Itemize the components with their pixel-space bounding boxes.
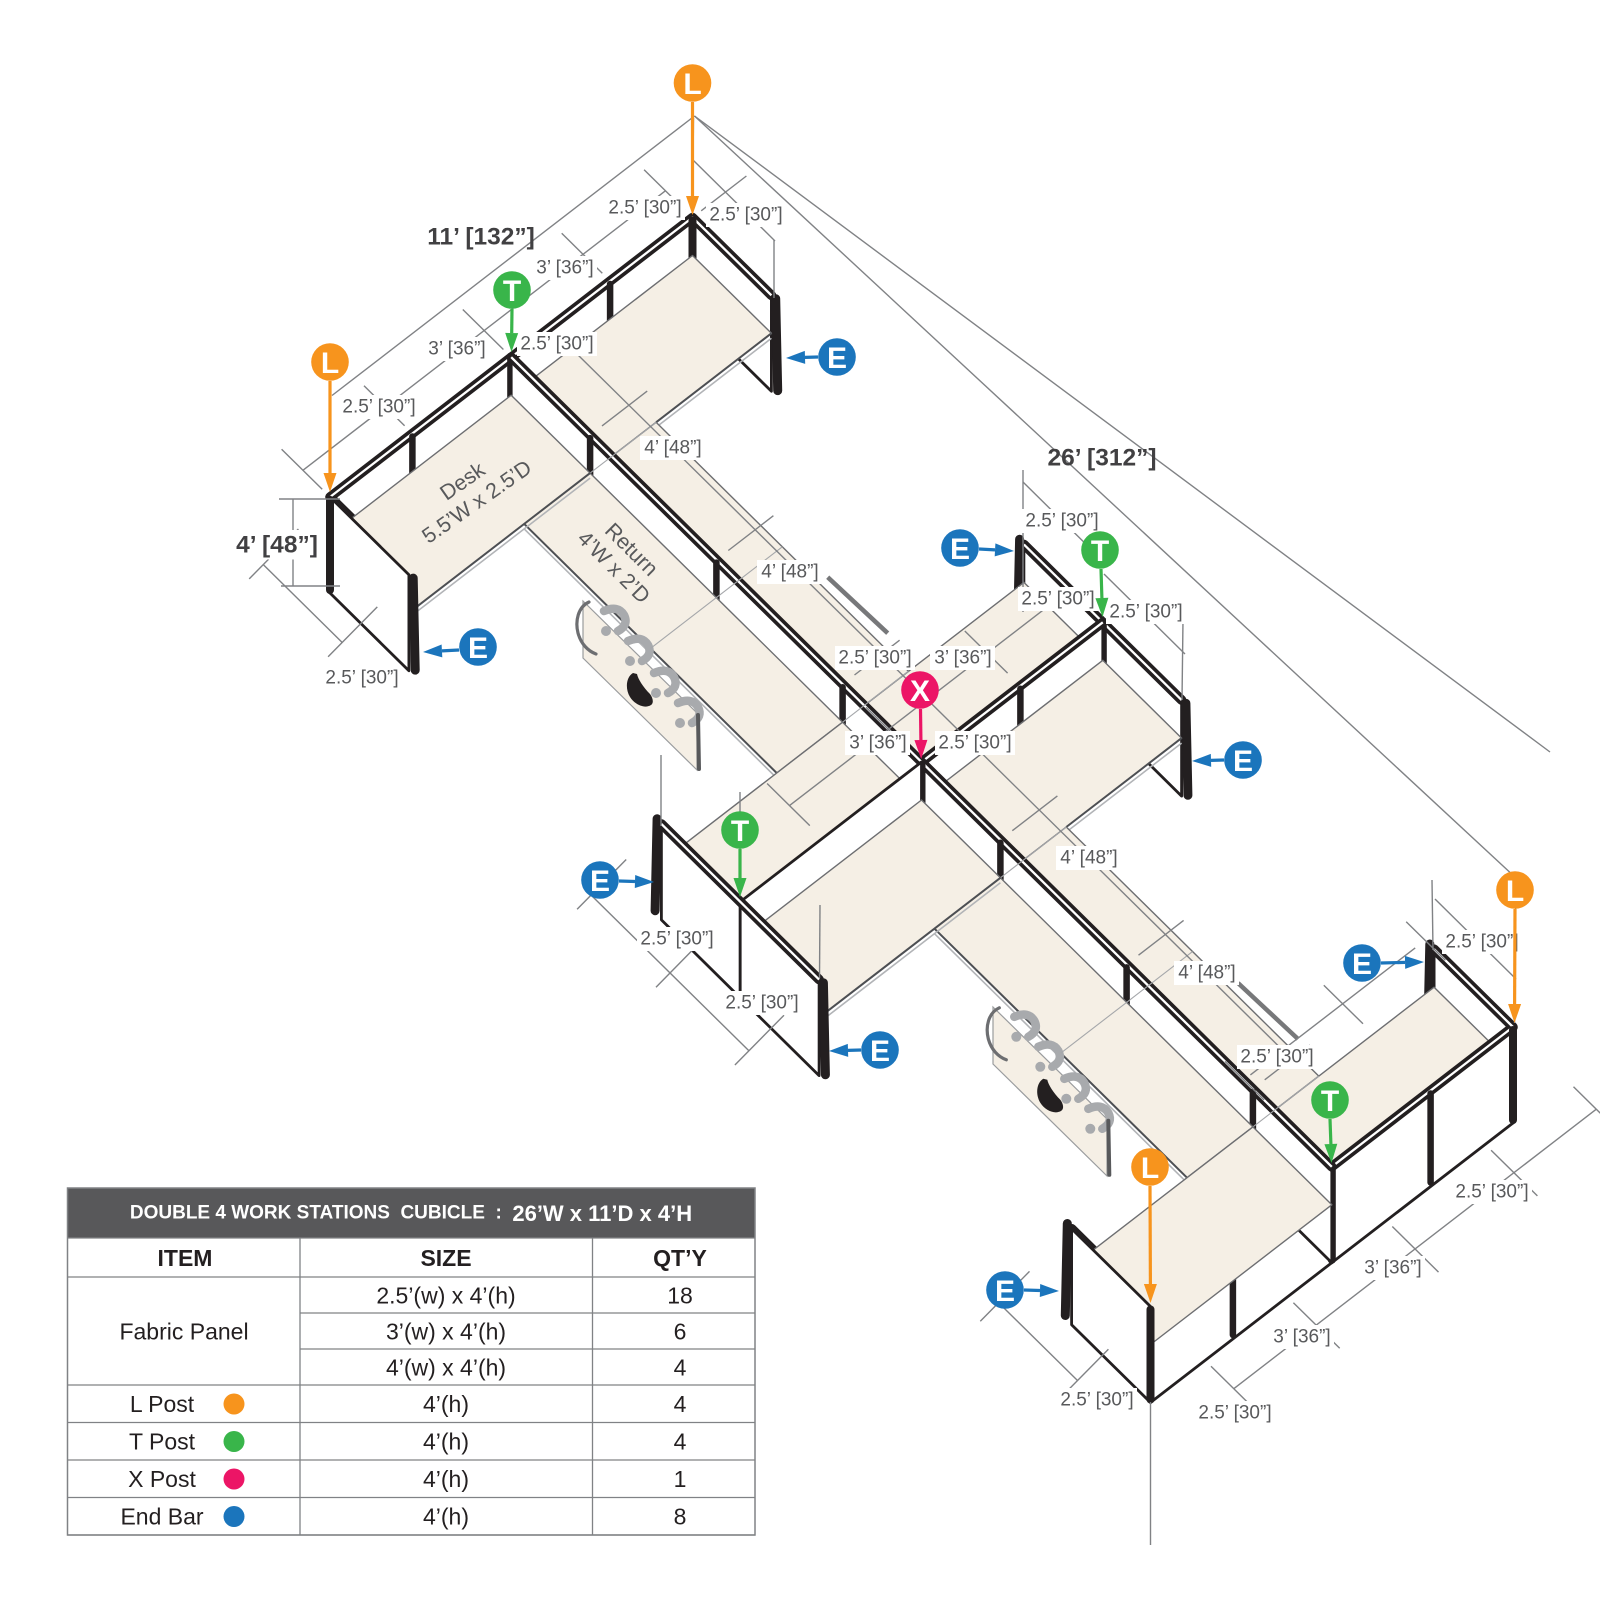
svg-text:4’ [48”]: 4’ [48”] bbox=[761, 562, 818, 583]
svg-text:X Post: X Post bbox=[128, 1466, 196, 1492]
svg-text:11’ [132”]: 11’ [132”] bbox=[427, 224, 535, 251]
svg-text:3’ [36”]: 3’ [36”] bbox=[428, 339, 485, 360]
svg-text:4’ [48”]: 4’ [48”] bbox=[644, 438, 701, 459]
svg-text:4’(h): 4’(h) bbox=[423, 1391, 469, 1417]
svg-text:L: L bbox=[321, 347, 339, 380]
svg-text:3’(w) x 4’(h): 3’(w) x 4’(h) bbox=[386, 1319, 506, 1345]
svg-text:E: E bbox=[468, 632, 488, 665]
svg-text:2.5’ [30”]: 2.5’ [30”] bbox=[1109, 602, 1182, 623]
svg-text:End Bar: End Bar bbox=[120, 1504, 203, 1530]
svg-text:2.5’ [30”]: 2.5’ [30”] bbox=[1455, 1182, 1528, 1203]
svg-text:T: T bbox=[731, 815, 749, 848]
svg-text:2.5’(w) x 4’(h): 2.5’(w) x 4’(h) bbox=[376, 1283, 515, 1309]
svg-text:T: T bbox=[503, 275, 521, 308]
svg-text:2.5’ [30”]: 2.5’ [30”] bbox=[1025, 511, 1098, 532]
svg-text:T: T bbox=[1091, 535, 1109, 568]
svg-text:4’(w) x 4’(h): 4’(w) x 4’(h) bbox=[386, 1355, 506, 1381]
svg-text:2.5’ [30”]: 2.5’ [30”] bbox=[838, 648, 911, 669]
svg-text:4’(h): 4’(h) bbox=[423, 1429, 469, 1455]
svg-text:3’ [36”]: 3’ [36”] bbox=[1273, 1327, 1330, 1348]
svg-text:L: L bbox=[1141, 1152, 1159, 1185]
svg-text:L: L bbox=[683, 68, 701, 101]
svg-text:2.5’ [30”]: 2.5’ [30”] bbox=[709, 205, 782, 226]
svg-text:18: 18 bbox=[667, 1283, 693, 1309]
svg-text:4: 4 bbox=[674, 1429, 687, 1455]
svg-text:2.5’ [30”]: 2.5’ [30”] bbox=[1240, 1047, 1313, 1068]
svg-text:E: E bbox=[870, 1035, 890, 1068]
svg-text:2.5’ [30”]: 2.5’ [30”] bbox=[608, 198, 681, 219]
svg-text:2.5’ [30”]: 2.5’ [30”] bbox=[1021, 589, 1094, 610]
svg-text:QT’Y: QT’Y bbox=[653, 1245, 707, 1271]
svg-text:1: 1 bbox=[674, 1466, 687, 1492]
svg-text:ITEM: ITEM bbox=[158, 1245, 213, 1271]
svg-text:2.5’ [30”]: 2.5’ [30”] bbox=[1445, 932, 1518, 953]
svg-text:2.5’ [30”]: 2.5’ [30”] bbox=[640, 929, 713, 950]
svg-text:Fabric Panel: Fabric Panel bbox=[119, 1319, 248, 1345]
svg-text:DOUBLE 4 WORK STATIONS CUBICL: DOUBLE 4 WORK STATIONS CUBICLE : 26’W x … bbox=[130, 1201, 692, 1226]
svg-text:E: E bbox=[590, 865, 610, 898]
svg-text:2.5’ [30”]: 2.5’ [30”] bbox=[938, 733, 1011, 754]
svg-text:6: 6 bbox=[674, 1319, 687, 1345]
svg-text:4’ [48”]: 4’ [48”] bbox=[1060, 848, 1117, 869]
svg-text:T: T bbox=[1321, 1085, 1339, 1118]
svg-text:3’ [36”]: 3’ [36”] bbox=[1364, 1258, 1421, 1279]
svg-text:8: 8 bbox=[674, 1504, 687, 1530]
svg-text:E: E bbox=[827, 342, 847, 375]
svg-text:3’ [36”]: 3’ [36”] bbox=[849, 733, 906, 754]
svg-text:3’ [36”]: 3’ [36”] bbox=[536, 258, 593, 279]
svg-text:4: 4 bbox=[674, 1391, 687, 1417]
svg-text:2.5’ [30”]: 2.5’ [30”] bbox=[342, 397, 415, 418]
svg-text:3’ [36”]: 3’ [36”] bbox=[934, 648, 991, 669]
svg-text:2.5’ [30”]: 2.5’ [30”] bbox=[325, 668, 398, 689]
svg-text:4’ [48”]: 4’ [48”] bbox=[236, 532, 318, 559]
svg-text:E: E bbox=[950, 533, 970, 566]
svg-text:E: E bbox=[995, 1275, 1015, 1308]
svg-text:X: X bbox=[910, 675, 930, 708]
svg-text:SIZE: SIZE bbox=[420, 1245, 471, 1271]
svg-text:4’ [48”]: 4’ [48”] bbox=[1178, 963, 1235, 984]
svg-text:L: L bbox=[1506, 875, 1524, 908]
svg-text:2.5’ [30”]: 2.5’ [30”] bbox=[725, 993, 798, 1014]
svg-text:4’(h): 4’(h) bbox=[423, 1466, 469, 1492]
svg-text:2.5’ [30”]: 2.5’ [30”] bbox=[520, 334, 593, 355]
svg-text:L Post: L Post bbox=[130, 1391, 195, 1417]
svg-text:E: E bbox=[1352, 948, 1372, 981]
svg-text:2.5’ [30”]: 2.5’ [30”] bbox=[1060, 1390, 1133, 1411]
svg-text:26’ [312”]: 26’ [312”] bbox=[1048, 445, 1157, 472]
svg-text:E: E bbox=[1233, 745, 1253, 778]
svg-text:T Post: T Post bbox=[129, 1429, 196, 1455]
svg-text:2.5’ [30”]: 2.5’ [30”] bbox=[1198, 1403, 1271, 1424]
svg-text:4: 4 bbox=[674, 1355, 687, 1381]
svg-text:4’(h): 4’(h) bbox=[423, 1504, 469, 1530]
